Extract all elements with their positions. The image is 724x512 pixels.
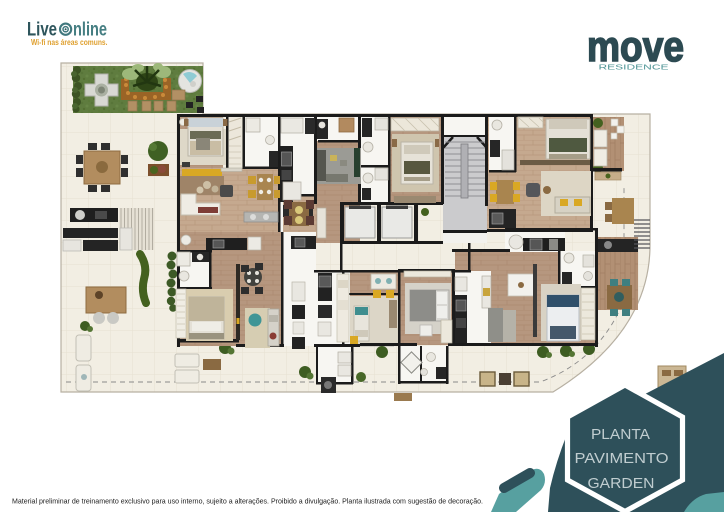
svg-text:PAVIMENTO: PAVIMENTO (575, 450, 669, 467)
svg-text:PLANTA: PLANTA (591, 426, 650, 443)
svg-text:Material preliminar de treinam: Material preliminar de treinamento exclu… (12, 497, 483, 506)
svg-text:Wi-fi nas áreas comuns.: Wi-fi nas áreas comuns. (31, 38, 108, 47)
svg-text:GARDEN: GARDEN (588, 475, 655, 492)
svg-text:RESIDENCE: RESIDENCE (599, 62, 669, 71)
